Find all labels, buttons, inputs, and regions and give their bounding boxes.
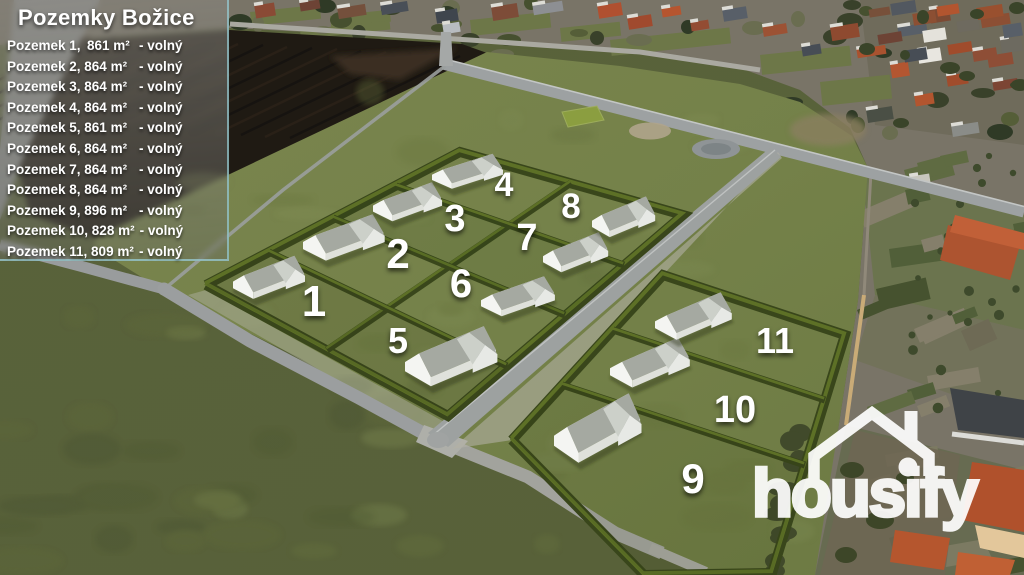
svg-text:housify: housify bbox=[752, 456, 978, 531]
svg-text:8: 8 bbox=[561, 187, 580, 226]
svg-text:9: 9 bbox=[681, 455, 704, 502]
svg-text:3: 3 bbox=[444, 198, 465, 240]
svg-text:11: 11 bbox=[756, 320, 794, 361]
svg-text:2: 2 bbox=[386, 230, 409, 277]
svg-text:10: 10 bbox=[714, 389, 756, 431]
svg-text:1: 1 bbox=[302, 277, 326, 326]
svg-text:4: 4 bbox=[495, 166, 514, 204]
svg-text:6: 6 bbox=[450, 262, 472, 306]
svg-text:5: 5 bbox=[388, 320, 408, 361]
svg-text:7: 7 bbox=[516, 217, 537, 259]
